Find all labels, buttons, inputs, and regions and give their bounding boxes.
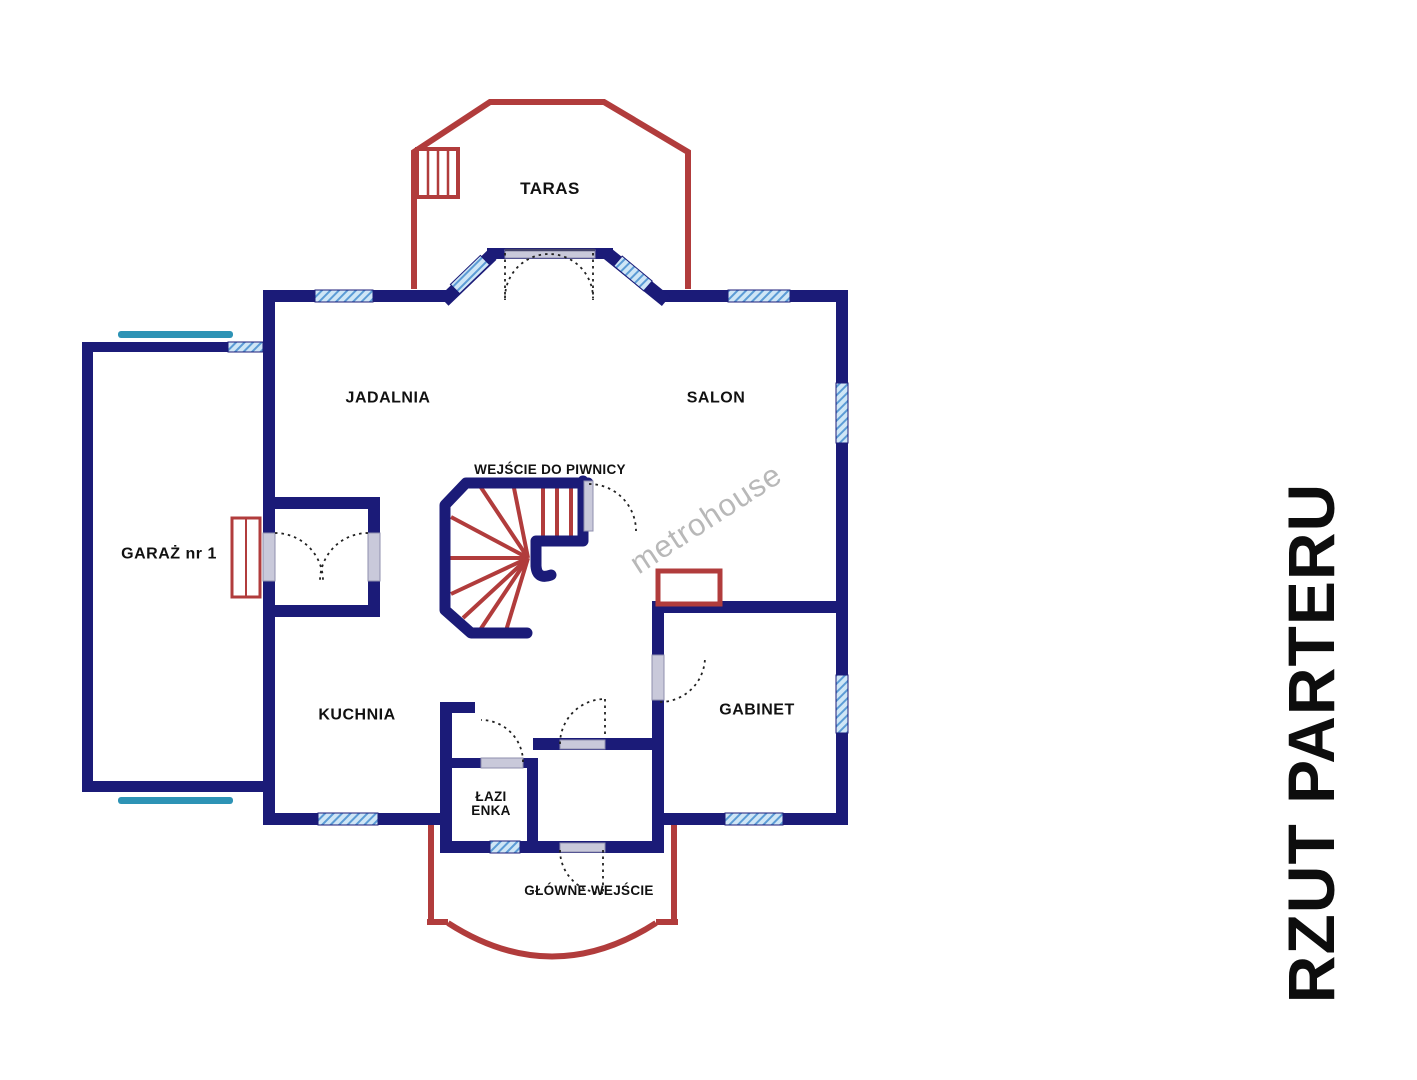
basement-staircase (445, 481, 588, 634)
annotation-main-entrance: GŁÓWNE WEJŚCIE (524, 884, 653, 898)
garage-sill-bars (118, 331, 233, 804)
floor-plan-page: { "title": { "text": "RZUT PARTERU" }, "… (0, 0, 1417, 1080)
jamb-hall-door (560, 740, 605, 749)
jamb-main-entrance-door (560, 843, 605, 852)
room-label-gabinet: GABINET (719, 703, 795, 720)
room-label-salon: SALON (687, 391, 746, 408)
room-label-taras: TARAS (520, 180, 580, 198)
room-label-jadalnia: JADALNIA (346, 391, 431, 408)
floor-plan-drawing (0, 0, 1417, 1080)
window-salon-top (728, 290, 790, 302)
room-label-lazienka-line2: ENKA (471, 804, 510, 818)
window-salon-right (836, 383, 848, 443)
garage-door-symbol (232, 518, 260, 597)
stair-steps (449, 483, 571, 634)
window-gabinet-bottom (725, 813, 783, 825)
jamb-vestibule-left (263, 533, 275, 581)
room-label-kuchnia: KUCHNIA (318, 708, 395, 725)
page-title: RZUT PARTERU (1273, 483, 1349, 1003)
swing-vestibule-right (320, 533, 368, 581)
window-garaz-top (228, 342, 263, 352)
swing-terrace-arc (505, 254, 593, 298)
window-lazienka-bottom (490, 841, 520, 853)
swing-hall (560, 699, 605, 744)
jamb-lazienka-door (481, 758, 523, 768)
room-label-lazienka-line1: ŁAZI (471, 790, 510, 804)
room-label-lazienka: ŁAZI ENKA (471, 790, 510, 818)
swing-vestibule-left (275, 533, 323, 581)
swing-gabinet (660, 657, 705, 702)
swing-lazienka (481, 720, 523, 762)
swing-stair-door (589, 484, 636, 531)
jamb-stair-door (584, 481, 593, 531)
window-gabinet-right (836, 675, 848, 733)
window-bay-left (450, 255, 489, 293)
chimney-symbol (658, 571, 720, 604)
annotation-basement-entrance: WEJŚCIE DO PIWNICY (474, 463, 626, 477)
jamb-vestibule-right (368, 533, 380, 581)
window-bay-right (614, 256, 652, 291)
window-kuchnia-bottom (318, 813, 378, 825)
room-label-garaz: GARAŻ nr 1 (121, 547, 217, 564)
jamb-gabinet-door (652, 655, 664, 700)
terrace-steps-icon (417, 149, 458, 197)
window-jadalnia-top (315, 290, 373, 302)
